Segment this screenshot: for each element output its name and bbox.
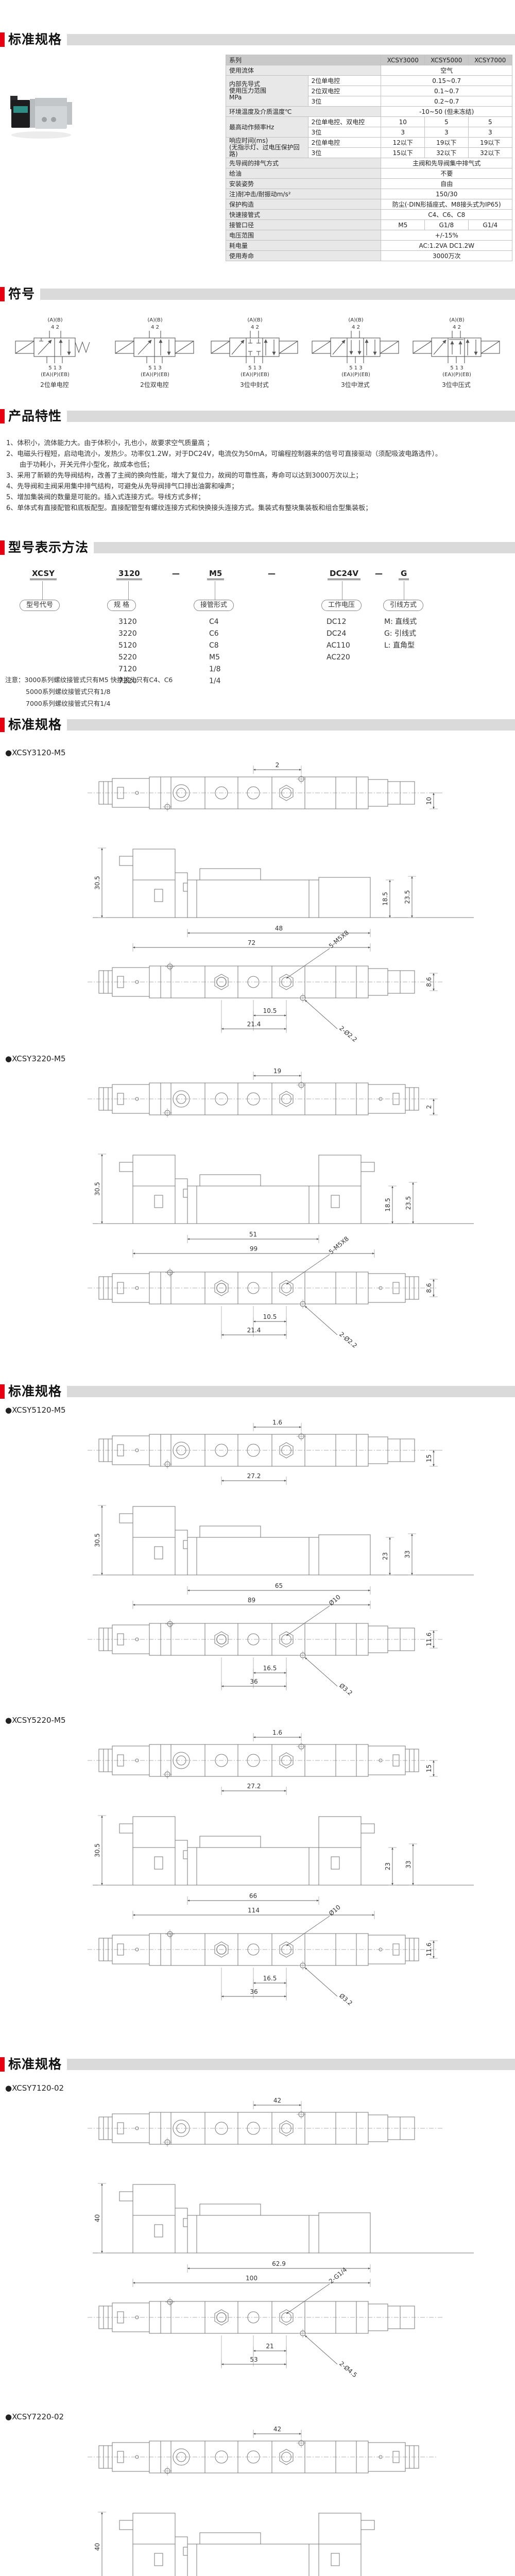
- dim-note: 5-M5X8: [328, 929, 350, 950]
- dim-label: 11.6: [425, 1633, 433, 1647]
- table-row: 快速接管式 C4、C6、C8: [226, 210, 512, 220]
- section-marker: [0, 409, 5, 423]
- dim-label: 42: [273, 2426, 281, 2433]
- feature-item: 1、体积小，流体能力大。由于体积小，孔也小，故要求空气质量高 ；: [6, 438, 510, 449]
- row-value: 0.2~0.7: [381, 96, 512, 107]
- option: 1/4: [209, 675, 221, 687]
- row-sublabel: 3位: [308, 127, 381, 138]
- row-value: 150/30: [381, 189, 512, 199]
- option: AC220: [327, 652, 350, 664]
- dim-note: 2-Ø2.2: [338, 1331, 358, 1350]
- dim-label: 48: [275, 925, 283, 932]
- dim-label: 36: [250, 1678, 257, 1685]
- model-code-dash: —: [375, 569, 383, 578]
- port-labels-bottom: (EA)(P)(EB): [442, 372, 471, 377]
- voltage-options: DC12 DC24 AC110 AC220: [327, 616, 350, 664]
- table-row: 耗电量 AC:1.2VA DC1.2W: [226, 241, 512, 251]
- section-title: 标准规格: [8, 2057, 62, 2072]
- port-labels-bottom: (EA)(P)(EB): [341, 372, 370, 377]
- section-band: [67, 34, 515, 45]
- dim-label: 15: [425, 1454, 433, 1462]
- option: AC110: [327, 640, 350, 652]
- symbol-graphics: [115, 331, 194, 363]
- drawing-views: 424062.91002-G1/421532-Ø4.5: [88, 2097, 474, 2379]
- row-value: M5: [381, 220, 425, 230]
- connector-line: [215, 581, 215, 601]
- section-marker: [0, 540, 5, 555]
- feature-list: 1、体积小，流体能力大。由于体积小，孔也小，故要求空气质量高 ； 2、电磁头行程…: [6, 438, 510, 514]
- drawing-label-xcsy3120-m5: ●XCSY3120-M5: [5, 748, 66, 757]
- section-title: 产品特性: [8, 409, 62, 423]
- row-label: 系列: [226, 55, 381, 65]
- section-marker: [0, 718, 5, 732]
- table-row: 最高动作频率Hz 2位单电控、双电控 10 5 5: [226, 117, 512, 127]
- port-labels-top: (A)(B): [348, 317, 363, 323]
- dim-label: 23.5: [405, 1196, 412, 1210]
- symbol-2pos-double: (A)(B) 4 2 5 1 3 (EA)(P)(EB) 2位双电控: [107, 315, 202, 389]
- symbol-caption: 2位单电控: [7, 380, 102, 389]
- port-numbers-bottom: 5 1 3: [349, 365, 362, 371]
- bubble-lead-type: 引线方式: [383, 600, 423, 611]
- drawing-xcsy7120-02: 424062.91002-G1/421532-Ø4.5: [0, 2096, 515, 2384]
- feature-item: 5、增加集装阀的数量是可能的。插入式连接方式。导线方式多样；: [6, 492, 510, 503]
- option: C4: [209, 616, 221, 628]
- model-code-dash: —: [172, 569, 180, 578]
- drawing-label-xcsy5120-m5: ●XCSY5120-M5: [5, 1405, 66, 1415]
- dim-label: 8.6: [425, 1283, 433, 1293]
- row-value: 0.15~0.7: [381, 76, 512, 86]
- section-header-model-designation: 型号表示方法: [0, 540, 515, 555]
- dim-label: 27.2: [247, 1472, 261, 1480]
- option: L: 直角型: [384, 640, 417, 652]
- section-band: [67, 2059, 515, 2070]
- dim-label: 100: [246, 2275, 257, 2282]
- section-title: 标准规格: [8, 1384, 62, 1399]
- section-header-standard-specs-3: 标准规格: [0, 1384, 515, 1399]
- drawing-views: 21030.518.523.548725-M5X88.610.521.42-Ø2…: [88, 761, 474, 1043]
- row-label: 内部先导式 使用压力范围 MPa: [226, 76, 308, 107]
- section-header-symbols: 符号: [0, 286, 515, 302]
- row-value: +/-15%: [381, 230, 512, 241]
- section-title: 型号表示方法: [8, 540, 89, 555]
- dim-label: 10.5: [263, 1007, 277, 1014]
- symbol-caption: 3位中泄式: [308, 380, 403, 389]
- connector-line: [404, 581, 404, 601]
- dim-label: 21.4: [247, 1021, 261, 1028]
- option: C6: [209, 628, 221, 640]
- bubble-voltage: 工作电压: [321, 600, 362, 611]
- row-value: G1/4: [468, 220, 512, 230]
- dim-label: 53: [250, 2356, 257, 2363]
- col-header: XCSY7000: [468, 55, 512, 65]
- table-row: 给油 不要: [226, 168, 512, 179]
- row-label: 电压范围: [226, 230, 381, 241]
- dim-label: 42: [273, 2097, 281, 2104]
- dim-label: 36: [250, 1988, 257, 1995]
- table-row: 使用寿命 3000万次: [226, 251, 512, 261]
- row-label: 环境温度及介质温度℃: [226, 107, 381, 117]
- feature-item: 4、先导阀和主阀采用集中排气结构，可避免从先导阀排气口排出油雾和噪声；: [6, 481, 510, 492]
- pneumatic-symbol-svg: (A)(B) 4 2 5 1 3 (EA)(P)(EB): [409, 315, 504, 377]
- drawing-xcsy3120-m5: 21030.518.523.548725-M5X88.610.521.42-Ø2…: [0, 760, 515, 1049]
- drawing-xcsy3220-m5: 19230.518.523.551995-M5X88.610.521.42-Ø2…: [0, 1066, 515, 1355]
- section-band: [67, 719, 515, 731]
- option: M5: [209, 652, 221, 664]
- dim-label: 66: [249, 1892, 257, 1900]
- option: 3120: [118, 616, 137, 628]
- option: 5220: [118, 652, 137, 664]
- lead-options: M: 直线式 G: 引线式 L: 直角型: [384, 616, 417, 652]
- option: 1/8: [209, 664, 221, 675]
- row-value: 15以下: [381, 148, 425, 158]
- dim-label: 62.9: [272, 2260, 286, 2267]
- port-labels-bottom: (EA)(P)(EB): [41, 372, 70, 377]
- symbol-3pos-pressure-center: (A)(B) 4 2 5 1 3 (EA)(P)(EB) 3位中压式: [409, 315, 504, 389]
- bubble-model-code: 型号代号: [20, 600, 60, 611]
- dim-label: 114: [248, 1907, 260, 1914]
- row-value: 12以下: [381, 138, 425, 148]
- table-row: 先导阀的排气方式 主阀和先导阀集中排气式: [226, 158, 512, 168]
- dim-label: 99: [250, 1245, 257, 1252]
- feature-item: 6、单体式有直接配管和底板配型。直接配管型有螺纹连接方式和快换接头连接方式。集装…: [6, 503, 510, 514]
- drawing-label-xcsy7220-02: ●XCSY7220-02: [5, 2412, 64, 2421]
- feature-item: 3、采用了新颖的先导阀结构，改善了主阀的换向性能，增大了复位力，故阀的可靠性高，…: [6, 470, 510, 481]
- row-value: 5: [468, 117, 512, 127]
- drawing-views: 19230.518.523.551995-M5X88.610.521.42-Ø2…: [88, 1067, 474, 1349]
- row-value: 主阀和先导阀集中排气式: [381, 158, 512, 168]
- row-label: 快速接管式: [226, 210, 381, 220]
- row-sublabel: 2位单电控、双电控: [308, 117, 381, 127]
- symbol-graphics: [312, 331, 399, 363]
- dim-label: 16.5: [263, 1665, 277, 1672]
- drawing-label-xcsy5220-m5: ●XCSY5220-M5: [5, 1716, 66, 1725]
- dim-note: 2-Ø4.5: [338, 2360, 358, 2379]
- row-label: 响应时间(ms) (无指示灯、过电压保护回路): [226, 138, 308, 158]
- section-header-standard-specs-2: 标准规格: [0, 717, 515, 733]
- option: DC24: [327, 628, 350, 640]
- row-value: 3: [425, 127, 469, 138]
- row-value: G1/8: [425, 220, 469, 230]
- note-line: 5000系列螺纹接管式只有1/8: [5, 686, 173, 698]
- pneumatic-symbol-svg: (A)(B) 4 2 5 1 3 (EA)(P)(EB): [107, 315, 202, 377]
- dim-label: 51: [249, 1231, 257, 1238]
- drawing-views: 42401322-G1/421532-Ø4.5: [88, 2426, 474, 2576]
- section-band: [67, 1386, 515, 1397]
- dim-label: 16.5: [263, 1975, 277, 1982]
- port-labels-bottom: (EA)(P)(EB): [241, 372, 269, 377]
- symbol-caption: 3位中封式: [207, 380, 302, 389]
- row-sublabel: 3位: [308, 96, 381, 107]
- dim-label: 1.6: [272, 1729, 282, 1736]
- section-marker: [0, 287, 5, 301]
- dim-label: 33: [405, 1860, 412, 1868]
- option: M: 直线式: [384, 616, 417, 628]
- catalog-page: 标准规格 系列 XCSY3000 XCSY5000 XCSY7000 使用流体 …: [0, 0, 515, 2576]
- dim-label: 21.4: [247, 1327, 261, 1334]
- row-sublabel: 3位: [308, 148, 381, 158]
- port-labels-top: (A)(B): [147, 317, 162, 323]
- dim-label: 65: [275, 1582, 283, 1589]
- row-value: 不要: [381, 168, 512, 179]
- section-band: [40, 289, 515, 300]
- drawing-xcsy5220-m5: 1.61527.230.5233366114Ø1011.616.536Ø3.2: [0, 1728, 515, 2016]
- section-marker: [0, 1384, 5, 1399]
- drawing-label-xcsy3220-m5: ●XCSY3220-M5: [5, 1054, 66, 1063]
- option: G: 引线式: [384, 628, 417, 640]
- symbol-graphics: [15, 331, 90, 363]
- dim-label: 18.5: [382, 892, 389, 906]
- row-value: 空气: [381, 65, 512, 76]
- dim-label: 72: [248, 939, 255, 946]
- row-value: 0.1~0.7: [381, 86, 512, 96]
- row-value: AC:1.2VA DC1.2W: [381, 241, 512, 251]
- note-line: 注意：3000系列螺纹接管式只有M5 快换接头只有C4、C6: [5, 674, 173, 686]
- table-row: 环境温度及介质温度℃ -10~50 (但未冻结): [226, 107, 512, 117]
- port-labels-top: (A)(B): [449, 317, 464, 323]
- dim-label: 89: [248, 1597, 255, 1604]
- port-numbers-top: 4 2: [151, 325, 159, 330]
- note-line: 7000系列螺纹接管式只有1/4: [5, 698, 173, 709]
- drawing-xcsy7220-02: 42401322-G1/421532-Ø4.5: [0, 2425, 515, 2576]
- dim-label: 11.6: [425, 1943, 433, 1957]
- option: DC12: [327, 616, 350, 628]
- section-header-standard-specs-4: 标准规格: [0, 2057, 515, 2072]
- section-title: 标准规格: [8, 718, 62, 732]
- section-header-standard-specs-1: 标准规格: [0, 32, 515, 47]
- section-marker: [0, 32, 5, 47]
- drawing-views: 1.61527.230.5233366114Ø1011.616.536Ø3.2: [88, 1729, 474, 2007]
- row-label: 安装姿势: [226, 179, 381, 189]
- port-labels-top: (A)(B): [47, 317, 62, 323]
- symbol-graphics: [413, 331, 500, 363]
- valve-photo-graphics: [10, 96, 72, 139]
- dim-label: 19: [273, 1067, 281, 1075]
- dim-label: 33: [404, 1550, 411, 1558]
- symbol-2pos-single: (A)(B) 4 2 5 1 3 (EA)(P)(EB) 2位单电控: [7, 315, 102, 389]
- row-sublabel: 2位单电控: [308, 138, 381, 148]
- row-value: C4、C6、C8: [381, 210, 512, 220]
- section-band: [67, 411, 515, 422]
- drawing-views: 1.61527.230.523336589Ø1011.616.536Ø3.2: [88, 1419, 474, 1697]
- dim-label: 30.5: [94, 1843, 101, 1857]
- row-value: 32以下: [425, 148, 469, 158]
- connector-line: [342, 581, 342, 601]
- row-value: 防尘(·DIN形插座式、M8接头式为IP65): [381, 199, 512, 210]
- pipe-options: C4 C6 C8 M5 1/8 1/4: [209, 616, 221, 687]
- dim-label: 30.5: [94, 876, 101, 890]
- port-numbers-bottom: 5 1 3: [48, 365, 61, 371]
- dim-label: 10: [425, 797, 433, 805]
- model-code-dash: —: [268, 569, 276, 578]
- row-label: 使用寿命: [226, 251, 381, 261]
- table-row: 注)耐冲击/耐振动m/s² 150/30: [226, 189, 512, 199]
- dim-label: 40: [94, 2214, 101, 2222]
- feature-item: 由于功耗小，开关元件小型化，故成本也低；: [6, 460, 510, 470]
- section-marker: [0, 2057, 5, 2072]
- col-header: XCSY5000: [425, 55, 469, 65]
- row-label: 使用流体: [226, 65, 381, 76]
- section-band: [94, 542, 515, 553]
- option: 3220: [118, 628, 137, 640]
- dim-label: 23: [384, 1862, 391, 1870]
- dim-label: 10.5: [263, 1313, 277, 1320]
- symbol-3pos-closed-center: (A)(B) 4 2 5 1 3 (EA)(P)(EB) 3位中封式: [207, 315, 302, 389]
- col-header: XCSY3000: [381, 55, 425, 65]
- model-code-lead: G: [399, 569, 409, 580]
- dim-label: 30.5: [94, 1533, 101, 1547]
- port-numbers-top: 4 2: [251, 325, 259, 330]
- port-labels-bottom: (EA)(P)(EB): [141, 372, 169, 377]
- connector-line: [42, 581, 43, 601]
- dim-label: 23.5: [404, 890, 411, 904]
- dim-note: 2-Ø2.2: [338, 1025, 358, 1044]
- dim-note: Ø3.2: [338, 1682, 354, 1697]
- row-sublabel: 2位双电控: [308, 86, 381, 96]
- pneumatic-symbol-svg: (A)(B) 4 2 5 1 3 (EA)(P)(EB): [207, 315, 302, 377]
- row-label: 最高动作频率Hz: [226, 117, 308, 138]
- table-row: 电压范围 +/-15%: [226, 230, 512, 241]
- table-row: 系列 XCSY3000 XCSY5000 XCSY7000: [226, 55, 512, 65]
- dim-label: 2: [276, 761, 280, 769]
- row-value: 5: [425, 117, 469, 127]
- row-label: 保护构造: [226, 199, 381, 210]
- row-label: 注)耐冲击/耐振动m/s²: [226, 189, 381, 199]
- feature-item: 2、电磁头行程短，启动电流小，发热少。功率仅1.2W，对于DC24V，电流仅为5…: [6, 449, 510, 460]
- option: C8: [209, 640, 221, 652]
- row-value: 3: [381, 127, 425, 138]
- row-value: 自由: [381, 179, 512, 189]
- pneumatic-symbol-svg: (A)(B) 4 2 5 1 3 (EA)(P)(EB): [7, 315, 102, 377]
- connector-line: [128, 581, 129, 601]
- port-numbers-top: 4 2: [51, 325, 59, 330]
- symbol-caption: 2位双电控: [107, 380, 202, 389]
- dim-label: 2: [425, 1105, 433, 1109]
- pneumatic-symbol-svg: (A)(B) 4 2 5 1 3 (EA)(P)(EB): [308, 315, 403, 377]
- option: 5120: [118, 640, 137, 652]
- row-label: 接管口径: [226, 220, 381, 230]
- dim-label: 40: [94, 2543, 101, 2551]
- spec-table: 系列 XCSY3000 XCSY5000 XCSY7000 使用流体 空气 内部…: [226, 55, 512, 261]
- port-numbers-bottom: 5 1 3: [450, 365, 463, 371]
- dim-label: 15: [425, 1765, 433, 1772]
- dim-note: 5-M5X8: [328, 1235, 350, 1256]
- drawing-label-xcsy7120-02: ●XCSY7120-02: [5, 2083, 64, 2093]
- section-header-features: 产品特性: [0, 409, 515, 424]
- row-sublabel: 2位单电控: [308, 76, 381, 86]
- row-value: 3: [468, 127, 512, 138]
- dim-label: 1.6: [272, 1419, 282, 1426]
- row-value: 10: [381, 117, 425, 127]
- row-label: 给油: [226, 168, 381, 179]
- dim-label: 23: [382, 1552, 389, 1560]
- dim-note: 2-G1/4: [328, 2266, 348, 2285]
- row-label: 耗电量: [226, 241, 381, 251]
- table-row: 安装姿势 自由: [226, 179, 512, 189]
- symbol-graphics: [211, 331, 298, 363]
- model-code-pipe: M5: [207, 569, 224, 580]
- product-photo: [7, 75, 75, 151]
- model-code-spec: 3120: [116, 569, 142, 580]
- dim-note: Ø3.2: [338, 1992, 354, 2007]
- drawing-xcsy5120-m5: 1.61527.230.523336589Ø1011.616.536Ø3.2: [0, 1418, 515, 1706]
- row-value: 19以下: [425, 138, 469, 148]
- table-row: 保护构造 防尘(·DIN形插座式、M8接头式为IP65): [226, 199, 512, 210]
- table-row: 内部先导式 使用压力范围 MPa 2位单电控 0.15~0.7: [226, 76, 512, 86]
- symbol-caption: 3位中压式: [409, 380, 504, 389]
- dim-label: 27.2: [247, 1783, 261, 1790]
- table-row: 响应时间(ms) (无指示灯、过电压保护回路) 2位单电控 12以下 19以下 …: [226, 138, 512, 148]
- row-value: 32以下: [468, 148, 512, 158]
- symbol-3pos-exhaust-center: (A)(B) 4 2 5 1 3 (EA)(P)(EB) 3位中泄式: [308, 315, 403, 389]
- row-value: 3000万次: [381, 251, 512, 261]
- model-code-series: XCSY: [30, 569, 57, 580]
- dim-label: 18.5: [384, 1198, 391, 1212]
- row-label: 先导阀的排气方式: [226, 158, 381, 168]
- dim-label: 30.5: [94, 1182, 101, 1196]
- row-value: 19以下: [468, 138, 512, 148]
- bubble-pipe-type: 接管形式: [194, 600, 234, 611]
- port-numbers-bottom: 5 1 3: [248, 365, 261, 371]
- section-title: 标准规格: [8, 32, 62, 47]
- model-code-voltage: DC24V: [328, 569, 360, 580]
- table-row: 接管口径 M5 G1/8 G1/4: [226, 220, 512, 230]
- section-title: 符号: [8, 287, 35, 301]
- row-value: -10~50 (但未冻结): [381, 107, 512, 117]
- dim-label: 8.6: [425, 977, 433, 987]
- model-notes: 注意：3000系列螺纹接管式只有M5 快换接头只有C4、C6 5000系列螺纹接…: [5, 674, 173, 709]
- dim-label: 21: [266, 2343, 273, 2350]
- port-numbers-top: 4 2: [453, 325, 461, 330]
- port-numbers-top: 4 2: [352, 325, 360, 330]
- port-numbers-bottom: 5 1 3: [148, 365, 161, 371]
- port-labels-top: (A)(B): [247, 317, 262, 323]
- bubble-spec: 规 格: [107, 600, 136, 611]
- table-row: 使用流体 空气: [226, 65, 512, 76]
